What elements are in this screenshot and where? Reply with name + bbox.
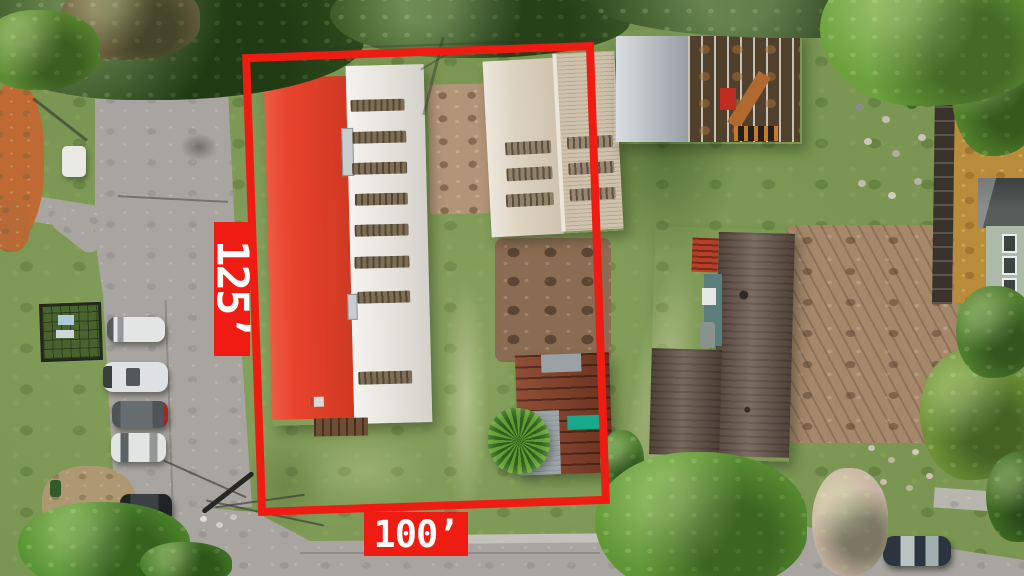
parked-car-white-van [107, 317, 165, 342]
neighbor-house-wing-roof [649, 348, 722, 456]
parked-car-dark-sedan [883, 536, 951, 566]
gray-tank-item [700, 322, 715, 348]
blossom-tree-pale [812, 468, 888, 576]
tree-bottom-left-small [140, 542, 232, 576]
parked-car-gray-suv [112, 401, 168, 428]
tree-right-column [956, 286, 1024, 378]
parked-car-white-sedan [111, 433, 166, 462]
debris-at-pole [200, 516, 207, 522]
orange-dirt-patch-2 [0, 200, 30, 252]
pavement-stain [180, 133, 218, 161]
construction-shed [614, 30, 802, 144]
red-outbuilding [691, 238, 718, 273]
red-equipment [720, 88, 736, 110]
lawn-equipment [50, 480, 61, 497]
utility-cabinet [62, 146, 86, 177]
aerial-property-photo: 125’ 100’ [0, 0, 1024, 576]
tree-bright-top-left [0, 10, 100, 90]
road-gutter-strip [452, 533, 617, 543]
lot-depth-label: 125’ [214, 222, 250, 356]
pallet-stack [734, 126, 778, 141]
far-house-roof [978, 178, 1024, 228]
garden-plot-item [58, 315, 74, 325]
lot-width-value: 100’ [373, 513, 458, 556]
white-suv-sunroof [126, 368, 140, 386]
garden-plot-item [56, 330, 74, 338]
debris-cluster-right-low [868, 445, 875, 451]
construction-shed-metal-roof [616, 36, 688, 142]
neighbor-house [649, 226, 795, 462]
neighbor-house-main-roof [713, 232, 795, 458]
lot-depth-value: 125’ [207, 240, 258, 338]
far-house-window [1002, 256, 1017, 275]
white-box-item [702, 288, 716, 305]
tree-overhang-bottom-road [595, 452, 807, 576]
far-house-window [1002, 234, 1017, 253]
lot-width-label: 100’ [364, 512, 468, 556]
far-right-house [978, 178, 1024, 304]
white-suv-hood-glass [103, 366, 112, 388]
property-boundary-outline [242, 42, 610, 516]
